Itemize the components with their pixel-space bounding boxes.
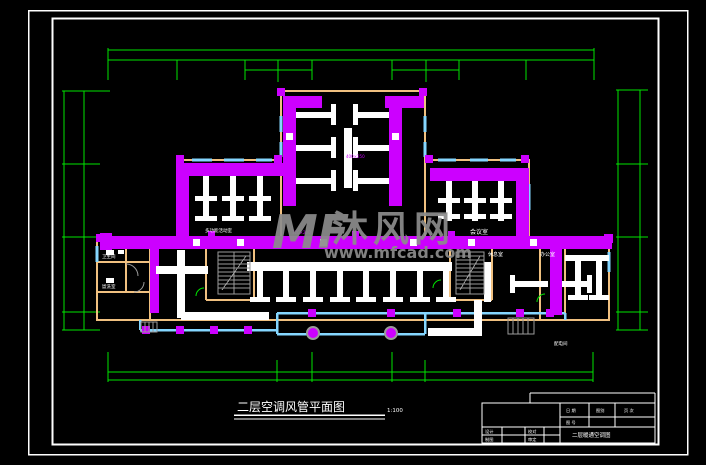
room-label-toilet: 卫生间 [102,253,116,260]
room-label-lounge: 休息室 [488,251,503,258]
watermark-site-url: www.mfcad.com [324,243,472,262]
room-label-multi-function: 多功能活动室 [205,227,232,234]
title-block-approve-label: 审定 [528,436,536,443]
room-label-washroom: 盥洗室 [102,283,116,290]
title-block-drawing-name: 二层暖通空调图 [572,431,611,439]
title-block-date-label: 日 期 [566,408,576,414]
watermark: MF 沐风网 www.mfcad.com [272,205,472,262]
title-block-page-label: 页 次 [624,407,635,414]
room-label-meeting: 会议室 [470,228,488,236]
title-block-check-label: 校对 [528,428,536,435]
title-block-number-label: 图 号 [566,420,576,426]
drawing-scale: 1:100 [387,408,403,414]
title-block-draft-label: 制图 [485,436,493,443]
floor-plan-drawing: 多功能活动室 会议室 办公室 休息室 卫生间 盥洗室 配电间 400×250 3… [0,0,706,465]
title-block-category-label: 图别 [596,407,604,414]
stairs-left [218,252,250,294]
room-label-power: 配电间 [554,340,568,347]
title-block: 日 期 图别 页 次 图 号 设计 校对 制图 审定 二层暖通空调图 [482,393,655,443]
cad-viewport: 多功能活动室 会议室 办公室 休息室 卫生间 盥洗室 配电间 400×250 3… [0,0,706,465]
title-block-design-label: 设计 [485,428,493,435]
duct-size-label-a: 400×250 [346,154,365,159]
drawing-title-group: 二层空调风管平面图 1:100 [234,399,403,419]
room-label-office: 办公室 [540,251,555,258]
drawing-title: 二层空调风管平面图 [237,399,345,414]
